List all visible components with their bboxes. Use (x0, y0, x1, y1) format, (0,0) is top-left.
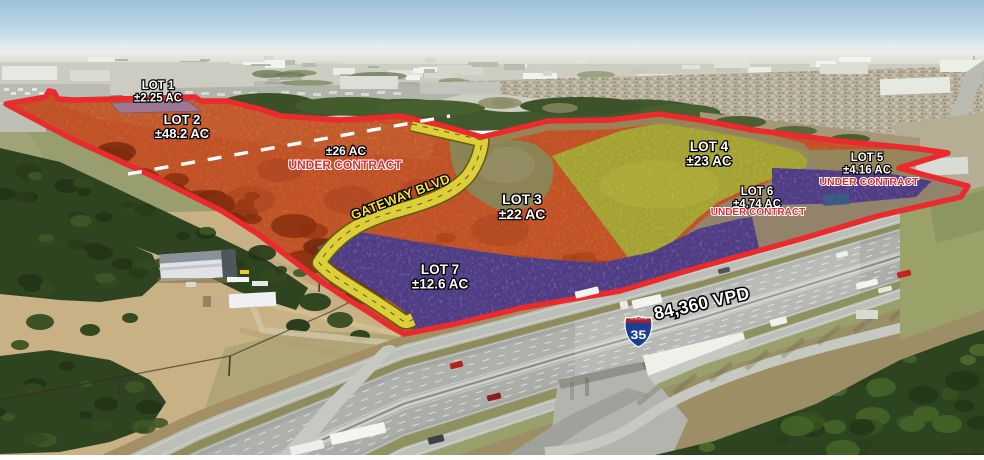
svg-text:±4.16 AC: ±4.16 AC (843, 165, 891, 177)
svg-text:±26 AC: ±26 AC (326, 144, 366, 158)
svg-text:LOT 3: LOT 3 (502, 191, 542, 207)
svg-text:LOT 7: LOT 7 (421, 262, 459, 277)
svg-text:±12.6 AC: ±12.6 AC (412, 277, 469, 292)
svg-text:±23 AC: ±23 AC (686, 154, 731, 169)
svg-text:LOT 6: LOT 6 (741, 186, 774, 198)
svg-text:35: 35 (631, 328, 647, 342)
svg-text:LOT 2: LOT 2 (164, 112, 201, 127)
svg-text:LOT 5: LOT 5 (851, 152, 884, 164)
svg-text:±48.2 AC: ±48.2 AC (155, 126, 210, 141)
svg-text:UNDER CONTRACT: UNDER CONTRACT (819, 176, 919, 188)
svg-text:UNDER CONTRACT: UNDER CONTRACT (711, 207, 805, 218)
svg-text:±22 AC: ±22 AC (499, 206, 546, 222)
svg-text:±2.25 AC: ±2.25 AC (134, 93, 182, 105)
svg-text:LOT 1: LOT 1 (142, 80, 175, 92)
svg-text:LOT 4: LOT 4 (690, 139, 729, 154)
svg-text:UNDER CONTRACT: UNDER CONTRACT (288, 158, 402, 172)
svg-text:INTERSTATE: INTERSTATE (630, 318, 647, 321)
